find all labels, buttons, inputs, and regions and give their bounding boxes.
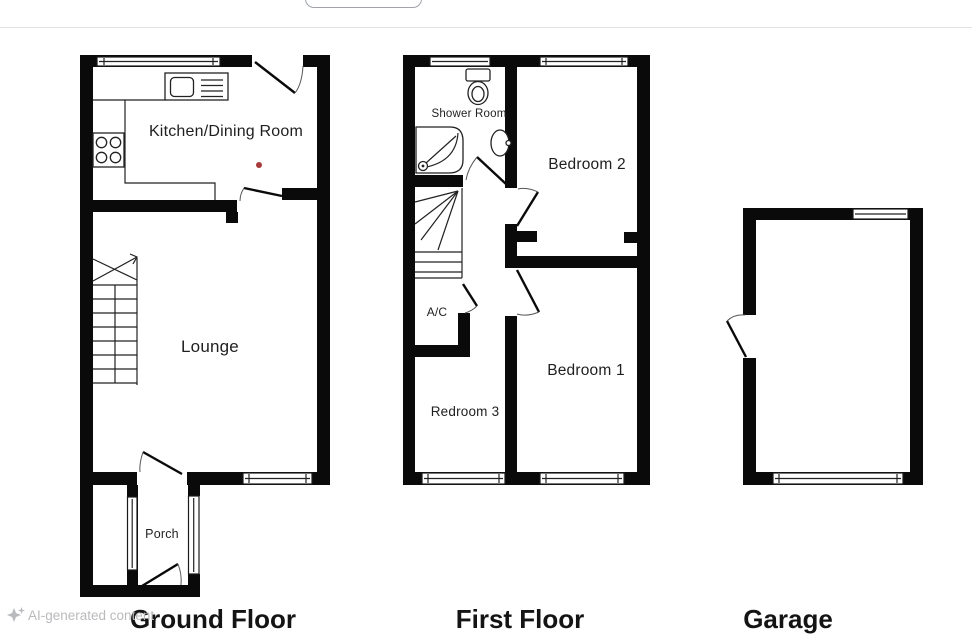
shower-room-label: Shower Room [431, 108, 506, 120]
ac-label: A/C [427, 305, 448, 319]
shower-room-window [430, 57, 490, 66]
ai-watermark: AI-generated content [7, 607, 154, 623]
floorplan-page: Kitchen/Dining Room Lounge Porch [0, 0, 972, 639]
shower-room-door [466, 157, 506, 184]
porch-left-window [128, 497, 138, 570]
sink-unit-icon [165, 73, 228, 100]
toilet-icon [466, 69, 490, 105]
red-location-marker [256, 162, 262, 168]
ground-floor-stairs [93, 254, 137, 385]
garage-title: Garage [743, 604, 833, 634]
hob-icon [93, 133, 124, 167]
ai-watermark-label: AI-generated content [28, 608, 154, 623]
bedroom1-label: Bedroom 1 [547, 362, 625, 379]
kitchen-dining-label: Kitchen/Dining Room [149, 123, 303, 140]
bedroom2-label: Bedroom 2 [548, 156, 626, 173]
porch-label: Porch [145, 527, 179, 541]
corner-shower-icon [416, 127, 463, 173]
bedroom3-window [422, 473, 505, 484]
first-floor-stairs [415, 188, 462, 278]
sparkle-icon [7, 607, 25, 622]
ground-floor-title: Ground Floor [130, 604, 296, 634]
bedroom2-door [517, 188, 538, 226]
ac-cupboard-door [463, 284, 477, 313]
garage-top-window [853, 209, 908, 219]
lounge-label: Lounge [181, 337, 239, 356]
first-floor-plan: Shower Room Bedroom 2 A/C Bedroom 1 Redr… [403, 55, 650, 485]
kitchen-lounge-door [240, 188, 282, 201]
floorplan-drawing: Kitchen/Dining Room Lounge Porch [0, 0, 972, 639]
garage-walls [743, 208, 923, 485]
lounge-window [243, 473, 312, 484]
bedroom2-window [540, 57, 628, 66]
porch-side-window [189, 496, 200, 574]
lounge-porch-door [140, 452, 182, 474]
bedroom3-label: Redroom 3 [431, 404, 500, 419]
ground-floor-plan: Kitchen/Dining Room Lounge Porch [80, 55, 330, 597]
kitchen-window [97, 57, 220, 66]
garage-plan [727, 208, 923, 485]
garage-front-window [773, 473, 903, 484]
first-floor-title: First Floor [456, 604, 585, 634]
bedroom1-door [517, 270, 539, 315]
porch-front-door [142, 564, 181, 586]
bedroom1-window [540, 473, 624, 484]
